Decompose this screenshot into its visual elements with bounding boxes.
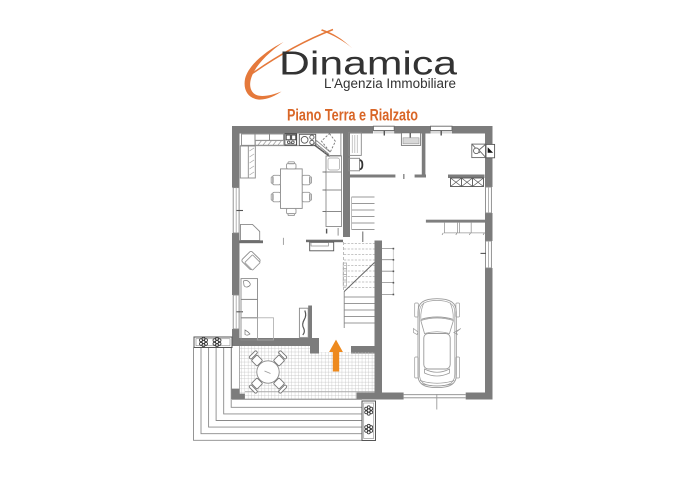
svg-text:L'Agenzia Immobiliare: L'Agenzia Immobiliare	[324, 76, 456, 91]
svg-text:Piano Terra e Rialzato: Piano Terra e Rialzato	[287, 106, 418, 125]
